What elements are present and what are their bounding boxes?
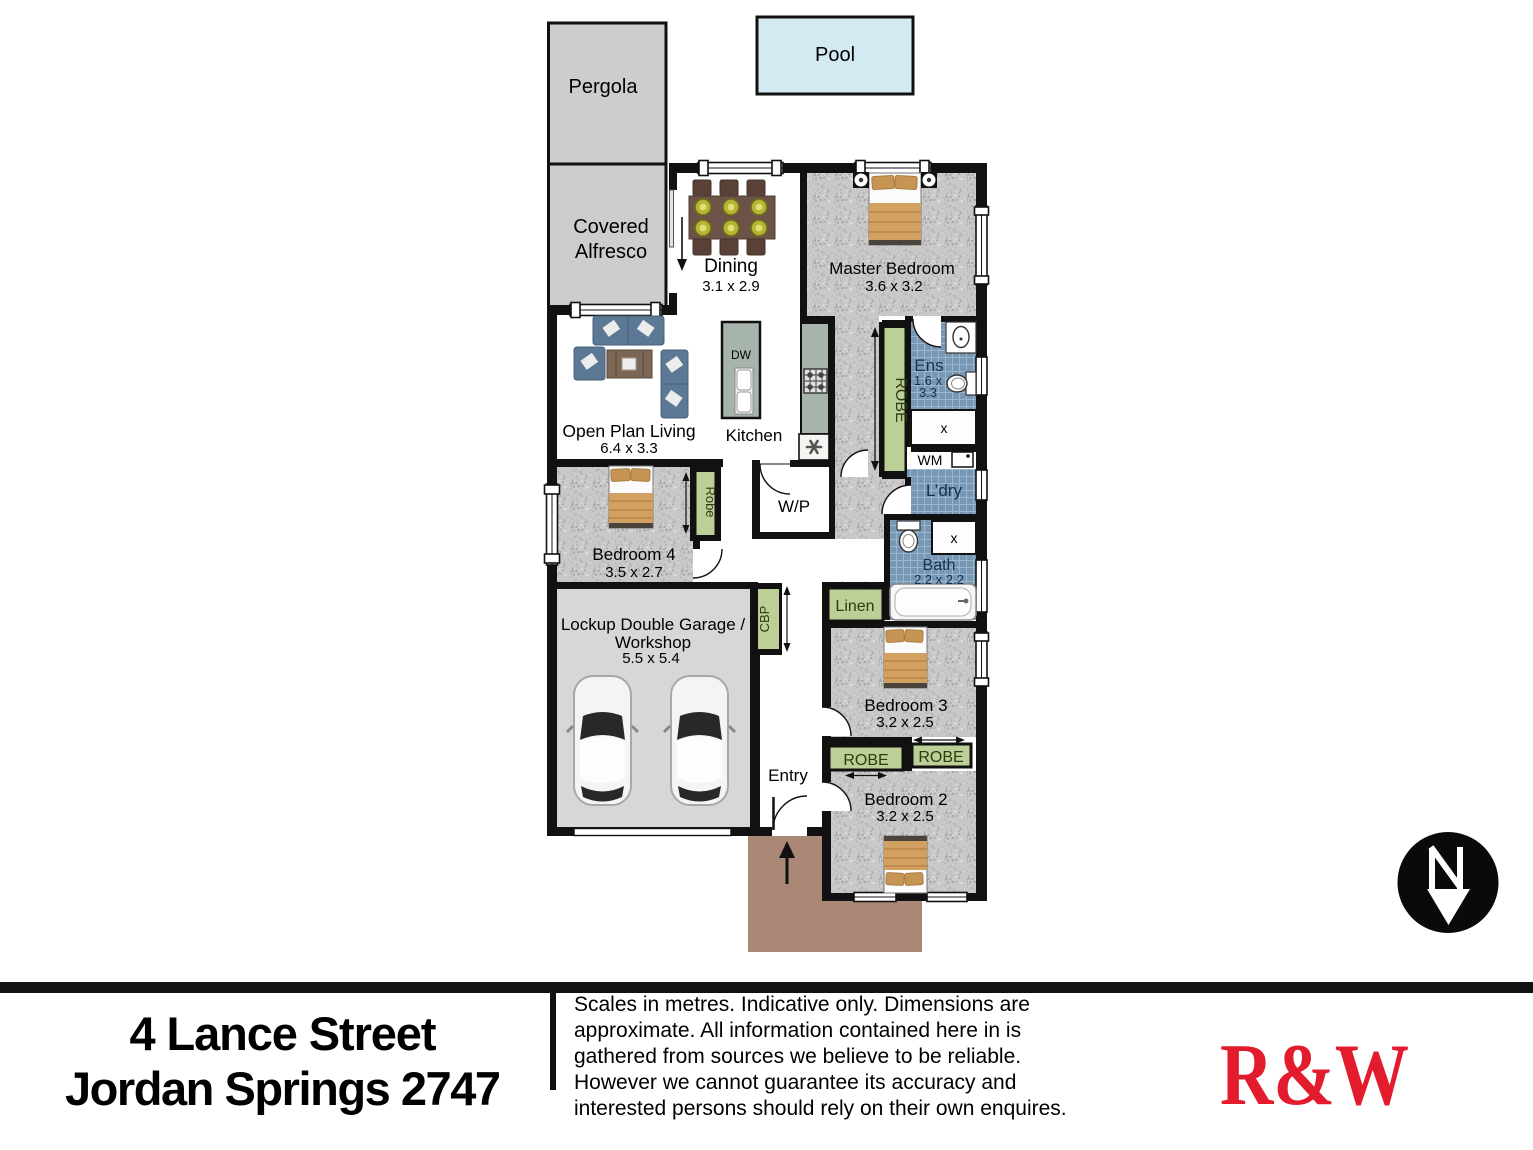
svg-text:Scales in metres. Indicative o: Scales in metres. Indicative only. Dimen… — [574, 993, 1030, 1016]
svg-text:Bedroom 2: Bedroom 2 — [864, 790, 947, 809]
svg-text:ROBE: ROBE — [892, 377, 909, 422]
svg-text:W/P: W/P — [778, 497, 810, 516]
svg-text:5.5 x 5.4: 5.5 x 5.4 — [622, 650, 680, 667]
svg-text:3.1 x 2.9: 3.1 x 2.9 — [702, 278, 760, 295]
svg-text:6.4 x 3.3: 6.4 x 3.3 — [600, 440, 658, 457]
svg-text:3.2 x 2.5: 3.2 x 2.5 — [876, 808, 934, 825]
svg-text:Entry: Entry — [768, 766, 808, 785]
svg-text:interested persons should rely: interested persons should rely on their … — [574, 1097, 1067, 1120]
svg-text:3.5 x 2.7: 3.5 x 2.7 — [605, 564, 663, 581]
svg-text:4 Lance Street: 4 Lance Street — [130, 1007, 437, 1060]
svg-text:3.6 x 3.2: 3.6 x 3.2 — [865, 278, 923, 295]
svg-text:approximate. All information c: approximate. All information contained h… — [574, 1019, 1021, 1042]
svg-text:Pool: Pool — [815, 44, 855, 66]
svg-text:Linen: Linen — [835, 598, 874, 615]
svg-text:Bedroom 4: Bedroom 4 — [592, 545, 675, 564]
svg-text:Dining: Dining — [704, 256, 758, 277]
svg-text:DW: DW — [731, 348, 752, 362]
svg-text:Lockup Double Garage /: Lockup Double Garage / — [561, 615, 746, 634]
svg-text:However we cannot guarantee it: However we cannot guarantee its accuracy… — [574, 1071, 1016, 1094]
svg-text:Jordan Springs 2747: Jordan Springs 2747 — [65, 1062, 501, 1115]
svg-text:ROBE: ROBE — [843, 752, 888, 769]
svg-text:L’dry: L’dry — [926, 481, 962, 500]
svg-text:x: x — [951, 530, 958, 546]
svg-text:2.2 x 2.2: 2.2 x 2.2 — [914, 572, 964, 587]
svg-text:R&W: R&W — [1220, 1027, 1409, 1124]
svg-text:Open Plan Living: Open Plan Living — [562, 421, 695, 441]
svg-text:Kitchen: Kitchen — [726, 426, 783, 445]
svg-text:ROBE: ROBE — [918, 749, 963, 766]
svg-text:Robe: Robe — [703, 486, 718, 517]
svg-text:Bedroom 3: Bedroom 3 — [864, 696, 947, 715]
svg-text:CBP: CBP — [757, 606, 772, 633]
svg-text:gathered from sources we belie: gathered from sources we believe to be r… — [574, 1045, 1021, 1068]
svg-text:x: x — [941, 420, 948, 436]
svg-text:Covered: Covered — [573, 216, 649, 238]
svg-text:3.2 x 2.5: 3.2 x 2.5 — [876, 714, 934, 731]
svg-text:Pergola: Pergola — [569, 76, 639, 98]
svg-text:3.3: 3.3 — [919, 385, 937, 400]
svg-text:WM: WM — [918, 452, 943, 468]
svg-text:Master Bedroom: Master Bedroom — [829, 259, 955, 278]
svg-text:Alfresco: Alfresco — [575, 241, 647, 263]
